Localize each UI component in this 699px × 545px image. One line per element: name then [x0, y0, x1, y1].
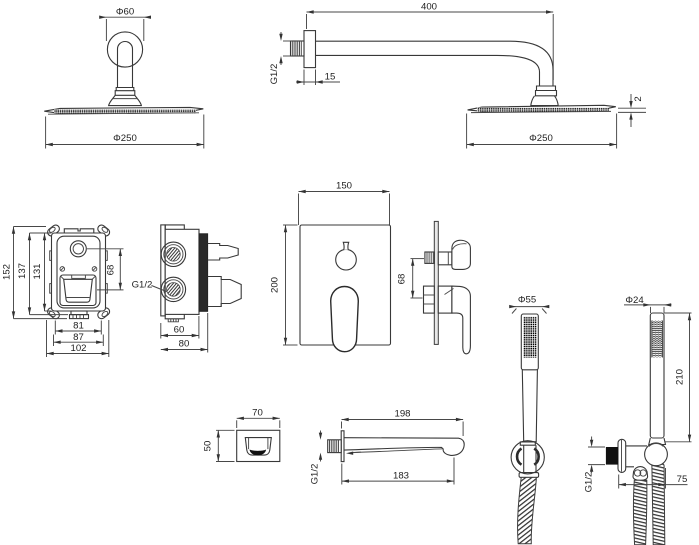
- svg-text:152: 152: [2, 264, 13, 280]
- svg-text:50: 50: [203, 441, 214, 452]
- svg-text:131: 131: [32, 263, 43, 279]
- svg-text:Φ24: Φ24: [625, 295, 644, 306]
- svg-text:60: 60: [174, 325, 185, 336]
- svg-text:G1/2: G1/2: [310, 464, 321, 485]
- svg-text:Φ250: Φ250: [113, 133, 137, 144]
- svg-text:15: 15: [325, 72, 336, 83]
- svg-text:80: 80: [179, 339, 190, 350]
- svg-text:150: 150: [336, 181, 352, 192]
- svg-text:68: 68: [397, 274, 408, 285]
- svg-text:Φ60: Φ60: [116, 7, 134, 18]
- svg-text:2: 2: [633, 96, 644, 101]
- svg-text:G1/2: G1/2: [269, 64, 280, 85]
- svg-text:Φ55: Φ55: [518, 295, 536, 306]
- svg-text:210: 210: [675, 369, 686, 385]
- svg-text:200: 200: [270, 277, 281, 293]
- svg-text:198: 198: [394, 409, 410, 420]
- svg-text:G1/2: G1/2: [132, 280, 153, 291]
- svg-text:81: 81: [73, 321, 84, 332]
- svg-text:G1/2: G1/2: [584, 472, 595, 493]
- svg-text:68: 68: [106, 265, 117, 276]
- svg-text:Φ250: Φ250: [529, 133, 553, 144]
- svg-text:400: 400: [421, 2, 437, 13]
- svg-text:137: 137: [17, 263, 28, 279]
- svg-text:87: 87: [73, 332, 84, 343]
- svg-text:102: 102: [70, 343, 86, 354]
- svg-text:75: 75: [677, 474, 688, 485]
- svg-text:183: 183: [393, 470, 409, 481]
- svg-text:70: 70: [252, 408, 263, 419]
